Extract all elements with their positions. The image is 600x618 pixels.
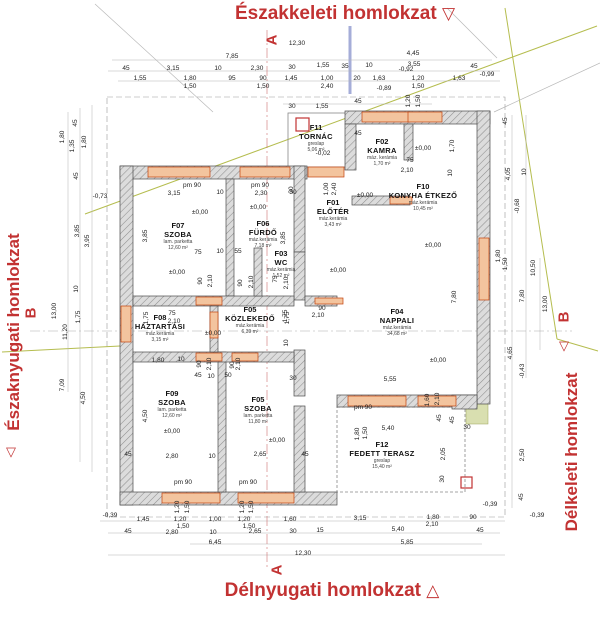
facade-title-southeast-text: Délkeleti homlokzat	[562, 373, 581, 532]
plan-drawing	[0, 0, 600, 618]
detail-box-terrace-post	[461, 477, 472, 488]
floor-plan-canvas: 12,307,854,45453,15102,30301,5535103,554…	[0, 0, 600, 618]
facade-title-northeast: Északkeleti homlokzat ▽	[235, 3, 455, 25]
terrace-outline	[337, 407, 465, 492]
facade-title-northwest-text: Északnyugati homlokzat	[4, 233, 23, 430]
section-marker-b-right: B	[556, 312, 573, 323]
eave-outline	[107, 97, 505, 517]
facade-triangle-bottom-icon: △	[426, 581, 439, 600]
facade-triangle-top-icon: ▽	[442, 4, 455, 23]
section-marker-a-bottom: A	[269, 565, 286, 576]
facade-title-southeast: Délkeleti homlokzat	[562, 373, 582, 532]
facade-title-southwest-text: Délnyugati homlokzat	[225, 580, 421, 601]
section-marker-a-top: A	[264, 35, 281, 46]
facade-title-northeast-text: Északkeleti homlokzat	[235, 3, 437, 24]
facade-triangle-right-icon: ▽	[559, 338, 569, 354]
facade-triangle-left-icon: ▽	[6, 444, 16, 460]
section-marker-b-left: B	[23, 308, 40, 319]
facade-title-southwest: Délnyugati homlokzat △	[225, 580, 440, 602]
facade-title-northwest: Északnyugati homlokzat	[4, 233, 24, 430]
detail-box-porch	[296, 118, 309, 131]
